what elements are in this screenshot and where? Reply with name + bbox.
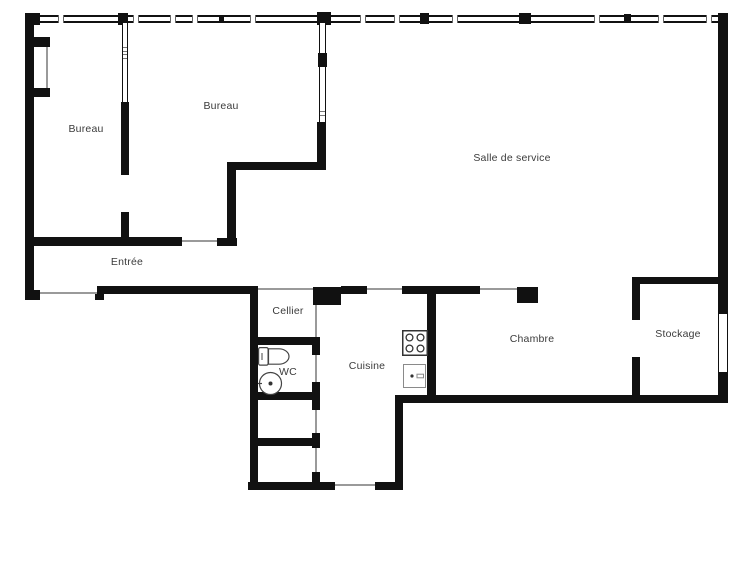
window-mullion — [58, 15, 64, 23]
room-label-cellier: Cellier — [272, 305, 303, 317]
window-mullion — [170, 15, 176, 23]
door-opening-line — [335, 484, 375, 486]
wall-segment — [97, 286, 258, 294]
oven-icon — [403, 364, 426, 388]
room-label-bureau-1: Bureau — [68, 123, 103, 135]
floor-plan: Bureau Bureau Salle de service Entrée Ce… — [0, 0, 750, 562]
wall-segment — [95, 294, 104, 300]
wall-segment — [312, 382, 320, 410]
wall-column-block — [517, 287, 538, 303]
door-opening-line — [315, 410, 317, 433]
window-band-top — [40, 15, 718, 23]
room-label-wc: WC — [279, 366, 297, 378]
wall-segment — [227, 162, 236, 246]
glazing-tick — [123, 47, 127, 52]
room-label-chambre: Chambre — [510, 333, 555, 345]
wall-segment — [318, 53, 327, 67]
wall-post — [420, 13, 429, 24]
window-mullion — [360, 15, 366, 23]
wall-segment — [312, 337, 320, 355]
door-opening-line — [367, 288, 402, 290]
window-mullion — [394, 15, 400, 23]
wall-segment — [248, 482, 335, 490]
window-mullion — [192, 15, 198, 23]
stove-icon — [402, 330, 428, 356]
wall-post — [624, 14, 631, 23]
wall-segment — [217, 238, 237, 246]
wall-segment — [312, 472, 320, 490]
wall-segment — [252, 337, 318, 345]
window-mullion — [658, 15, 664, 23]
wall-right-outer — [718, 13, 728, 313]
window-mullion — [594, 15, 600, 23]
wall-segment — [427, 286, 436, 403]
glazed-partition — [122, 23, 128, 102]
wall-segment — [632, 277, 640, 320]
niche-front-line — [46, 47, 48, 88]
door-opening-line — [182, 240, 217, 242]
door-opening-line — [315, 355, 317, 382]
wall-segment — [250, 438, 315, 446]
wall-post — [219, 15, 224, 23]
room-label-salle-de-service: Salle de service — [473, 152, 550, 164]
door-opening-line — [258, 288, 313, 290]
room-label-cuisine: Cuisine — [349, 360, 385, 372]
door-opening-line — [315, 448, 317, 472]
door-opening-line — [480, 288, 517, 290]
door-opening-line — [315, 305, 317, 337]
wall-segment — [25, 237, 182, 246]
wall-segment — [227, 162, 326, 170]
wall-segment — [341, 286, 367, 294]
window-right — [718, 313, 728, 373]
glazing-tick — [123, 54, 127, 59]
window-mullion — [452, 15, 458, 23]
window-mullion — [250, 15, 256, 23]
wall-left-outer — [25, 13, 34, 300]
wall-segment — [25, 88, 50, 97]
entry-door-line — [40, 292, 97, 294]
wall-bottom-outer — [395, 395, 728, 403]
room-label-entree: Entrée — [111, 256, 143, 268]
window-mullion — [133, 15, 139, 23]
wall-segment — [632, 357, 640, 403]
wall-column-block — [313, 287, 341, 305]
wall-segment — [121, 102, 129, 175]
wall-segment — [312, 433, 320, 448]
wall-segment — [632, 277, 718, 284]
room-label-stockage: Stockage — [655, 328, 700, 340]
window-mullion — [706, 15, 712, 23]
glazed-partition — [319, 23, 326, 122]
wall-segment — [25, 37, 50, 47]
wall-segment — [25, 290, 40, 300]
toilet-icon — [258, 347, 291, 366]
wall-post — [519, 13, 531, 24]
room-label-bureau-2: Bureau — [203, 100, 238, 112]
wall-segment — [395, 395, 403, 490]
wall-segment — [402, 286, 480, 294]
glazing-tick — [320, 111, 325, 116]
wall-segment — [250, 286, 258, 490]
